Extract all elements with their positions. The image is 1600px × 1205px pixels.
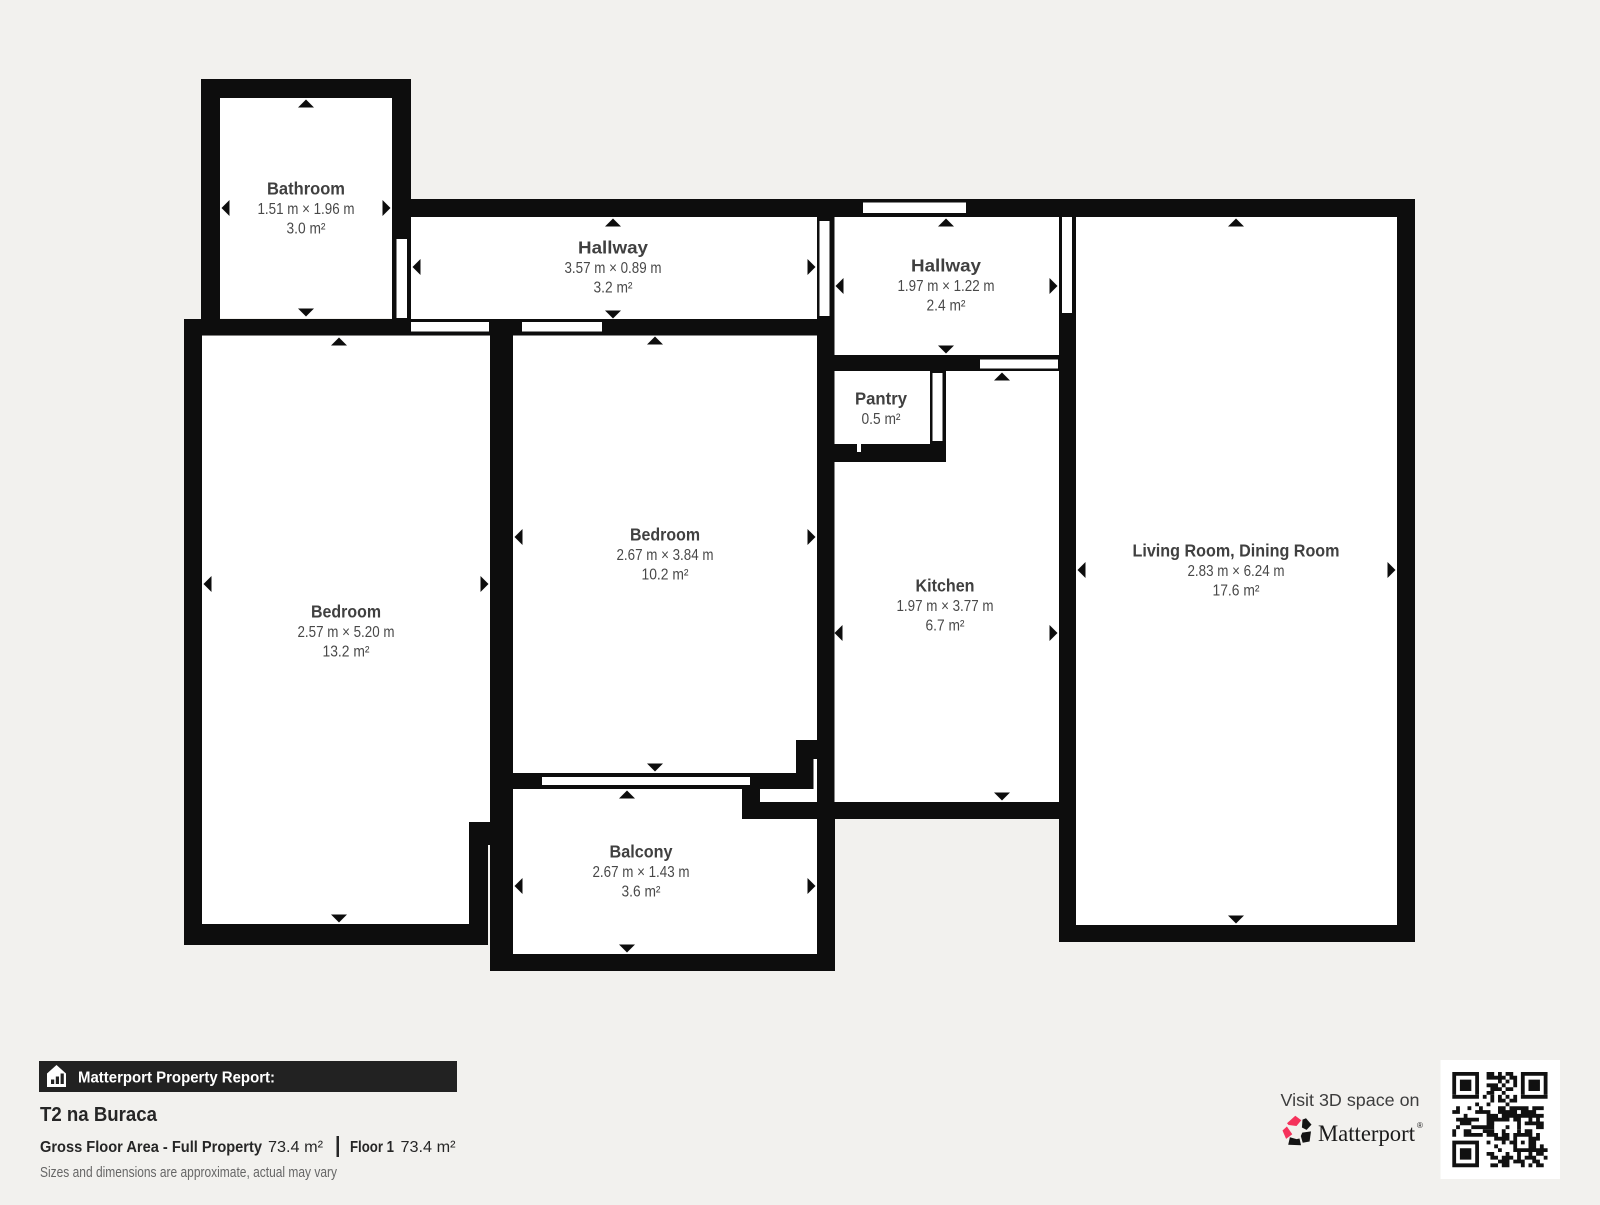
- svg-text:0.5 m²: 0.5 m²: [862, 411, 901, 428]
- svg-text:Hallway: Hallway: [578, 238, 648, 258]
- svg-text:1.51 m × 1.96 m: 1.51 m × 1.96 m: [258, 201, 355, 218]
- svg-text:Gross Floor Area - Full Proper: Gross Floor Area - Full Property: [40, 1139, 262, 1156]
- svg-text:73.4 m²: 73.4 m²: [268, 1139, 324, 1156]
- svg-text:1.97 m × 1.22 m: 1.97 m × 1.22 m: [898, 278, 995, 295]
- svg-text:2.67 m × 3.84 m: 2.67 m × 3.84 m: [617, 547, 714, 564]
- svg-text:2.83 m × 6.24 m: 2.83 m × 6.24 m: [1188, 563, 1285, 580]
- svg-text:3.0 m²: 3.0 m²: [287, 221, 326, 238]
- svg-text:2.4 m²: 2.4 m²: [927, 298, 966, 315]
- svg-text:10.2 m²: 10.2 m²: [642, 567, 689, 584]
- svg-text:13.2 m²: 13.2 m²: [323, 644, 370, 661]
- svg-text:2.67 m × 1.43 m: 2.67 m × 1.43 m: [593, 864, 690, 881]
- svg-text:Living Room, Dining Room: Living Room, Dining Room: [1133, 541, 1340, 561]
- svg-text:Bedroom: Bedroom: [311, 602, 381, 622]
- svg-text:Bedroom: Bedroom: [630, 525, 700, 545]
- svg-text:Kitchen: Kitchen: [916, 576, 975, 596]
- svg-text:®: ®: [1417, 1121, 1423, 1130]
- svg-text:3.6 m²: 3.6 m²: [622, 884, 661, 901]
- svg-text:6.7 m²: 6.7 m²: [926, 618, 965, 635]
- svg-text:Balcony: Balcony: [610, 842, 673, 862]
- svg-text:1.97 m × 3.77 m: 1.97 m × 3.77 m: [897, 598, 994, 615]
- svg-text:17.6 m²: 17.6 m²: [1213, 583, 1260, 600]
- svg-text:Pantry: Pantry: [855, 389, 907, 409]
- svg-text:73.4 m²: 73.4 m²: [401, 1139, 457, 1156]
- svg-text:T2 na Buraca: T2 na Buraca: [40, 1104, 158, 1126]
- svg-text:3.2 m²: 3.2 m²: [594, 280, 633, 297]
- svg-text:Visit 3D space on: Visit 3D space on: [1281, 1090, 1420, 1110]
- svg-text:Matterport: Matterport: [1318, 1121, 1416, 1146]
- svg-text:3.57 m × 0.89 m: 3.57 m × 0.89 m: [565, 260, 662, 277]
- svg-text:2.57 m × 5.20 m: 2.57 m × 5.20 m: [298, 624, 395, 641]
- svg-text:Matterport Property Report:: Matterport Property Report:: [78, 1070, 275, 1087]
- svg-text:Sizes and dimensions are appro: Sizes and dimensions are approximate, ac…: [40, 1165, 338, 1181]
- svg-text:Hallway: Hallway: [911, 256, 981, 276]
- svg-text:Bathroom: Bathroom: [267, 179, 345, 199]
- svg-text:Floor 1: Floor 1: [350, 1139, 394, 1156]
